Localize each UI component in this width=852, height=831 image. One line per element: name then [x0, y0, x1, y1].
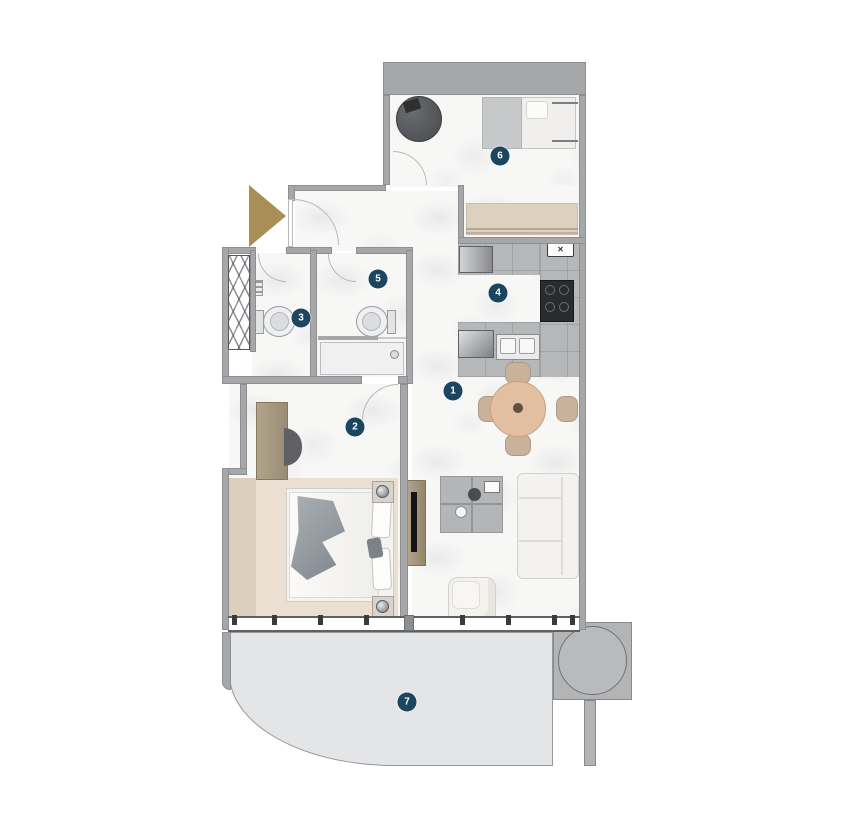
- window-mullion-6: [506, 615, 511, 625]
- dining-chair-bottom: [505, 434, 531, 456]
- stove-burner-3: [545, 302, 555, 312]
- bedroom-ledge: [229, 478, 256, 618]
- coffee-table-divider-v: [471, 476, 473, 533]
- balcony-floor: [229, 632, 553, 766]
- marker-room-6-label: 6: [497, 151, 503, 162]
- wall-bath5-right: [406, 250, 413, 384]
- kitchen-sink-basin-left: [500, 338, 516, 354]
- fridge: [458, 330, 494, 358]
- wall-shaft-right: [250, 250, 256, 352]
- sofa-back-line: [561, 477, 563, 575]
- window-mullion-1: [232, 615, 237, 625]
- wall-outer-left-lower: [222, 468, 229, 630]
- duct-shaft: [228, 255, 250, 350]
- window-mullion-center: [404, 615, 414, 631]
- kitchen-sink-basin-right: [519, 338, 535, 354]
- stove-burner-4: [559, 302, 569, 312]
- shower-head: [390, 350, 399, 359]
- shower-tray: [320, 342, 404, 375]
- marker-room-7: 7: [398, 693, 417, 712]
- window-mullion-5: [460, 615, 465, 625]
- marker-room-1-label: 1: [450, 386, 456, 397]
- shower-divider: [318, 336, 378, 340]
- stove-burner-1: [545, 285, 555, 295]
- sofa: [517, 473, 579, 579]
- wall-bath5-top-right: [356, 247, 413, 254]
- wall-top-slab: [383, 62, 586, 95]
- marker-room-7-label: 7: [404, 697, 410, 708]
- balcony-left-wall-stub: [222, 632, 231, 690]
- wall-bedroom-left-upper: [240, 384, 247, 474]
- marker-room-3: 3: [292, 309, 311, 328]
- sofa-seam-1: [519, 497, 561, 499]
- wardrobe-bench: [466, 203, 578, 235]
- toilet-bowl-inner-bath3: [270, 312, 289, 331]
- single-bed-pillow: [526, 101, 548, 119]
- tv-screen: [411, 492, 417, 552]
- single-bed-blanket: [482, 97, 522, 149]
- vent-x-icon: ✕: [557, 245, 564, 254]
- toilet-tank-bath5: [387, 310, 396, 334]
- armchair-seat: [452, 581, 480, 609]
- toilet-bowl-inner-bath5: [362, 312, 381, 331]
- marker-room-4-label: 4: [495, 288, 501, 299]
- marker-room-2-label: 2: [352, 422, 358, 433]
- sofa-seam-2: [519, 540, 561, 542]
- dining-table-centerpiece: [513, 403, 523, 413]
- coffee-table-divider-h: [440, 503, 503, 505]
- wall-bedroom-top-stub: [398, 376, 408, 384]
- entrance-arrow-icon: [249, 185, 286, 247]
- marker-room-2: 2: [346, 418, 365, 437]
- coffee-table-book: [484, 481, 500, 493]
- window-mullion-3: [318, 615, 323, 625]
- wall-kitchen-top: [458, 237, 586, 244]
- nightstand-top-lamp: [376, 485, 389, 498]
- wall-room6-lower-left: [458, 185, 464, 243]
- window-mullion-8: [570, 615, 575, 625]
- vent-box: ✕: [547, 242, 574, 257]
- marker-room-6: 6: [491, 147, 510, 166]
- balcony-right-strip: [584, 700, 596, 766]
- wall-bath-divider: [310, 250, 317, 380]
- single-bed-rail-bottom: [552, 140, 578, 142]
- window-mullion-2: [272, 615, 277, 625]
- wall-bath-top-right: [286, 247, 312, 254]
- wardrobe-bench-line: [466, 228, 578, 230]
- dining-chair-right: [556, 396, 578, 422]
- wall-room6-left: [383, 95, 390, 185]
- marker-room-3-label: 3: [298, 313, 304, 324]
- single-bed-rail-top: [552, 102, 578, 104]
- wardrobe-bench-line2: [466, 232, 578, 234]
- kitchen-counter-appliance: [459, 246, 493, 273]
- coffee-table-cup: [455, 506, 467, 518]
- balcony-column-circle: [558, 626, 627, 695]
- floor-plan: ✕: [0, 0, 852, 831]
- nightstand-bottom-lamp: [376, 600, 389, 613]
- window-mullion-4: [364, 615, 369, 625]
- shower-glass-line: [378, 337, 406, 339]
- wall-entry-top: [288, 185, 386, 191]
- wall-bedroom-top: [222, 376, 362, 384]
- marker-room-4: 4: [489, 284, 508, 303]
- marker-room-5: 5: [369, 270, 388, 289]
- coffee-table-bowl: [468, 488, 481, 501]
- wall-bedroom-partition: [400, 384, 408, 618]
- marker-room-5-label: 5: [375, 274, 381, 285]
- window-mullion-7: [552, 615, 557, 625]
- stove-burner-2: [559, 285, 569, 295]
- wall-right: [579, 95, 586, 630]
- marker-room-1: 1: [444, 382, 463, 401]
